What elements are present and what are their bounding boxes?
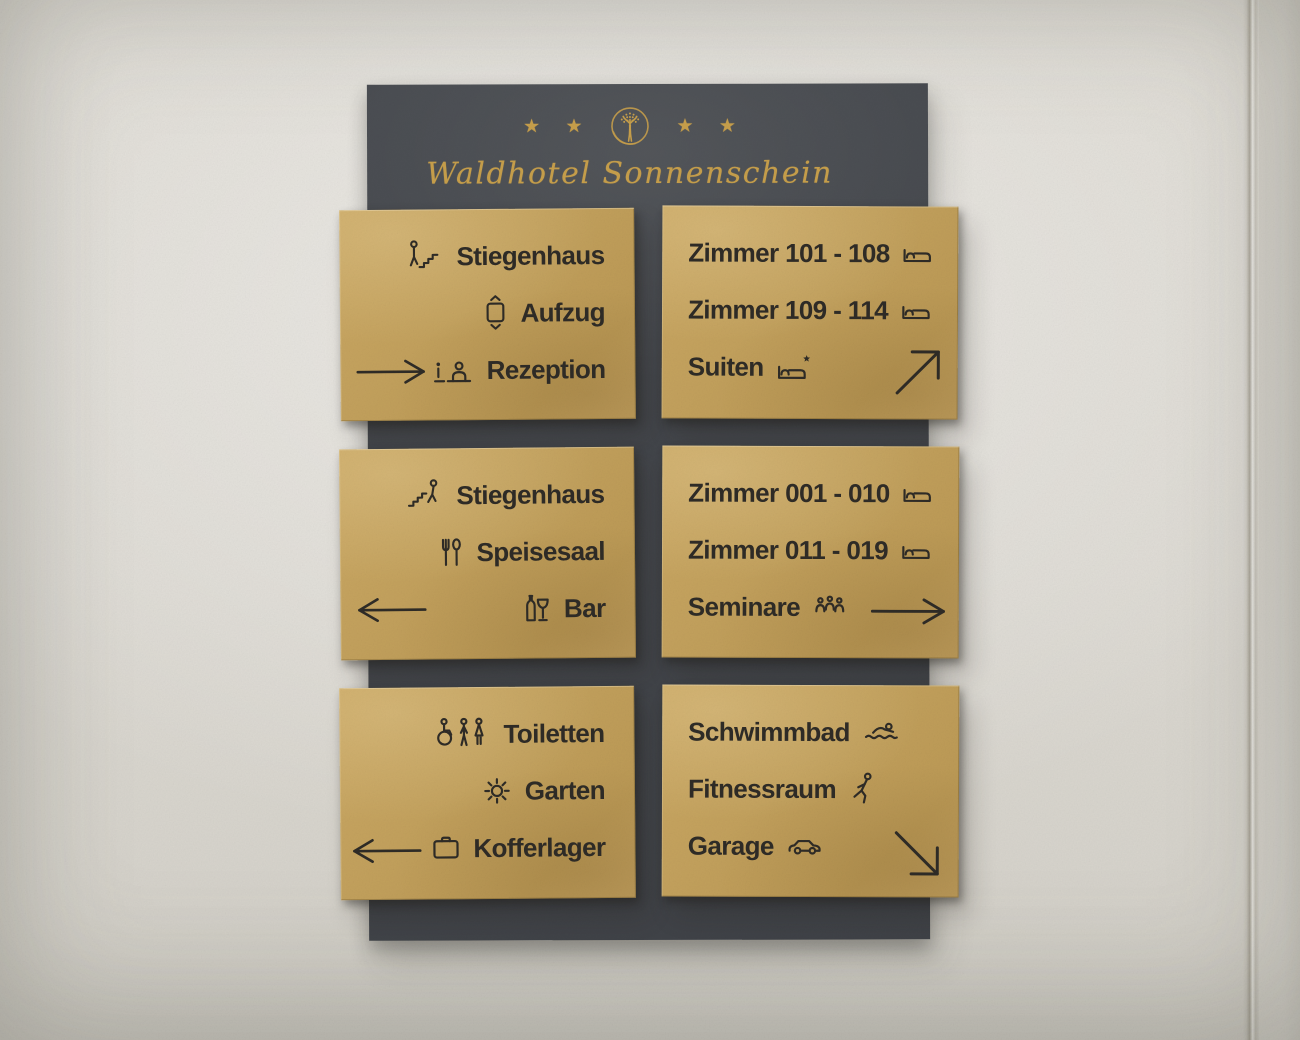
rating-stars-right: ★ ★	[666, 114, 745, 137]
sign-row: Schwimmbad	[688, 703, 941, 761]
bottle-glass-icon	[523, 593, 551, 623]
sign-row: Zimmer 109 - 114	[688, 280, 940, 338]
sign-row: Speisesaal	[356, 522, 606, 581]
reception-desk-icon	[432, 353, 474, 387]
arrow-right-icon	[869, 596, 949, 631]
sign-label: Stiegenhaus	[456, 480, 604, 507]
wall-seam	[1243, 0, 1259, 1040]
sign-label: Garage	[688, 832, 774, 858]
arrow-right-icon	[354, 357, 428, 393]
cutlery-icon	[437, 537, 463, 567]
bed-icon	[901, 540, 931, 560]
arrow-down-right-icon	[889, 825, 945, 886]
sign-label: Seminare	[688, 593, 800, 619]
bed-icon	[903, 483, 933, 503]
hotel-name: Waldhotel Sonnenschein	[349, 155, 910, 191]
sign-label: Zimmer 011 - 019	[688, 536, 888, 563]
sign-label: Suiten	[688, 353, 764, 379]
sign-row: Toiletten	[355, 704, 604, 763]
signage-scene: ★ ★	[0, 0, 1300, 1040]
hotel-brand: ★ ★	[349, 103, 910, 191]
sign-plate-middle-left: Stiegenhaus Speisesaal Bar	[339, 447, 636, 661]
arrow-left-icon	[354, 595, 428, 631]
suite-bed-star-icon	[777, 353, 813, 379]
sign-row: Zimmer 101 - 108	[688, 223, 940, 281]
sign-row: Zimmer 001 - 010	[688, 464, 941, 522]
sign-label: Zimmer 001 - 010	[688, 479, 890, 506]
tree-logo-icon	[607, 104, 651, 148]
stairs-down-icon	[406, 478, 443, 511]
sign-row: Stiegenhaus	[355, 465, 605, 524]
sign-plate-lower-right: Schwimmbad Fitnessraum Garage	[662, 684, 960, 897]
fitness-icon	[849, 772, 876, 806]
sign-label: Zimmer 101 - 108	[688, 239, 890, 266]
sign-plate-upper-right: Zimmer 101 - 108 Zimmer 109 - 114 Suiten	[662, 205, 959, 419]
sign-row: Stiegenhaus	[355, 226, 604, 285]
sign-label: Schwimmbad	[688, 718, 850, 745]
car-icon	[787, 835, 823, 855]
arrow-up-right-icon	[890, 344, 946, 405]
swimmer-icon	[863, 721, 899, 742]
sign-label: Stiegenhaus	[456, 241, 604, 268]
sign-label: Garten	[525, 776, 605, 803]
arrow-left-icon	[349, 836, 423, 872]
sign-label: Zimmer 109 - 114	[688, 296, 888, 323]
bed-icon	[901, 300, 931, 320]
sign-label: Aufzug	[520, 298, 605, 325]
sign-row: Garten	[356, 761, 605, 820]
suitcase-icon	[431, 835, 460, 860]
sun-icon	[482, 775, 512, 805]
elevator-icon	[482, 294, 507, 331]
audience-group-icon	[813, 595, 847, 618]
sign-plate-lower-left: Toiletten Garten Kofferlager	[339, 686, 636, 901]
brand-emblem: ★ ★	[349, 103, 910, 148]
sign-label: Toiletten	[503, 719, 604, 746]
sign-row: Fitnessraum	[688, 760, 941, 818]
toilets-icon	[435, 717, 490, 750]
sign-label: Bar	[564, 594, 606, 620]
sign-plate-middle-right: Zimmer 001 - 010 Zimmer 011 - 019 Semina…	[662, 445, 960, 658]
rating-stars-left: ★ ★	[513, 115, 592, 138]
sign-label: Kofferlager	[473, 833, 605, 860]
sign-label: Fitnessraum	[688, 775, 836, 802]
sign-label: Speisesaal	[476, 537, 605, 564]
concrete-wall-right-section	[1259, 0, 1300, 1040]
sign-label: Rezeption	[487, 355, 606, 382]
sign-row: Aufzug	[356, 283, 605, 342]
sign-plate-upper-left: Stiegenhaus Aufzug	[339, 208, 636, 422]
bed-icon	[903, 243, 933, 263]
sign-row: Zimmer 011 - 019	[688, 521, 941, 579]
stairs-up-icon	[406, 239, 443, 272]
